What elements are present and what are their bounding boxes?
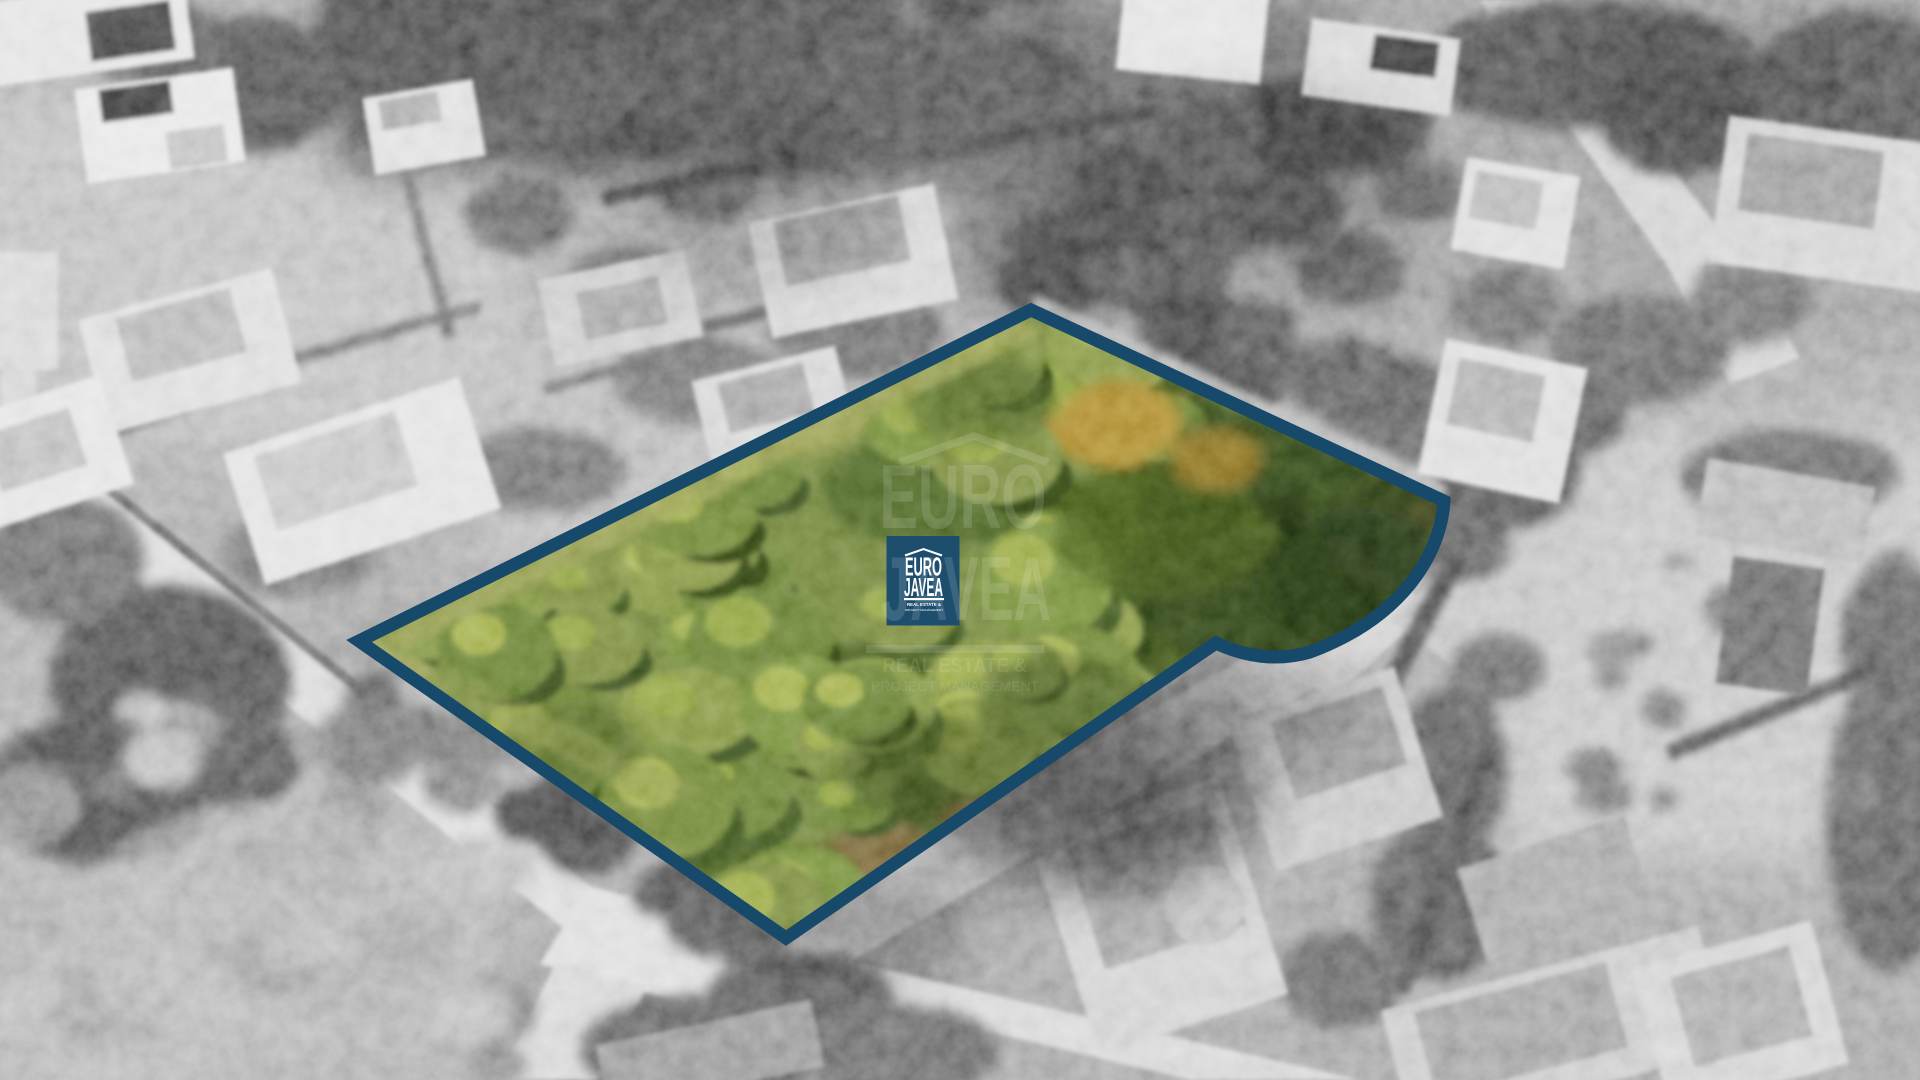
svg-text:PROJECT MANAGEMENT: PROJECT MANAGEMENT [871,678,1039,694]
svg-text:EURO: EURO [880,447,1047,548]
svg-text:JAVEA: JAVEA [881,539,1051,640]
svg-text:REAL ESTATE &: REAL ESTATE & [883,655,1028,677]
